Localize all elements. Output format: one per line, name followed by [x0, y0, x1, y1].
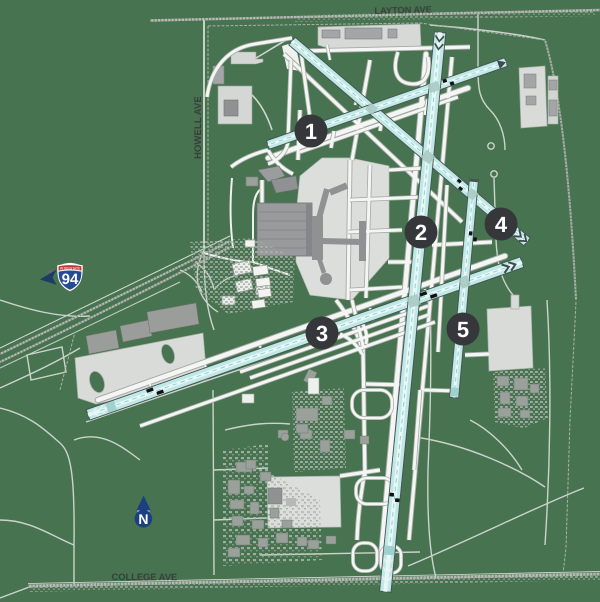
svg-text:1: 1 — [305, 119, 317, 144]
svg-text:COLLEGE AVE: COLLEGE AVE — [111, 571, 177, 582]
svg-text:LAYTON AVE: LAYTON AVE — [374, 4, 432, 15]
svg-text:2: 2 — [415, 220, 427, 245]
svg-text:5: 5 — [457, 317, 469, 342]
svg-text:94: 94 — [62, 271, 79, 288]
svg-text:HOWELL AVE: HOWELL AVE — [193, 96, 204, 159]
svg-text:3: 3 — [316, 321, 328, 346]
svg-text:4: 4 — [495, 212, 508, 237]
svg-text:N: N — [138, 511, 148, 527]
